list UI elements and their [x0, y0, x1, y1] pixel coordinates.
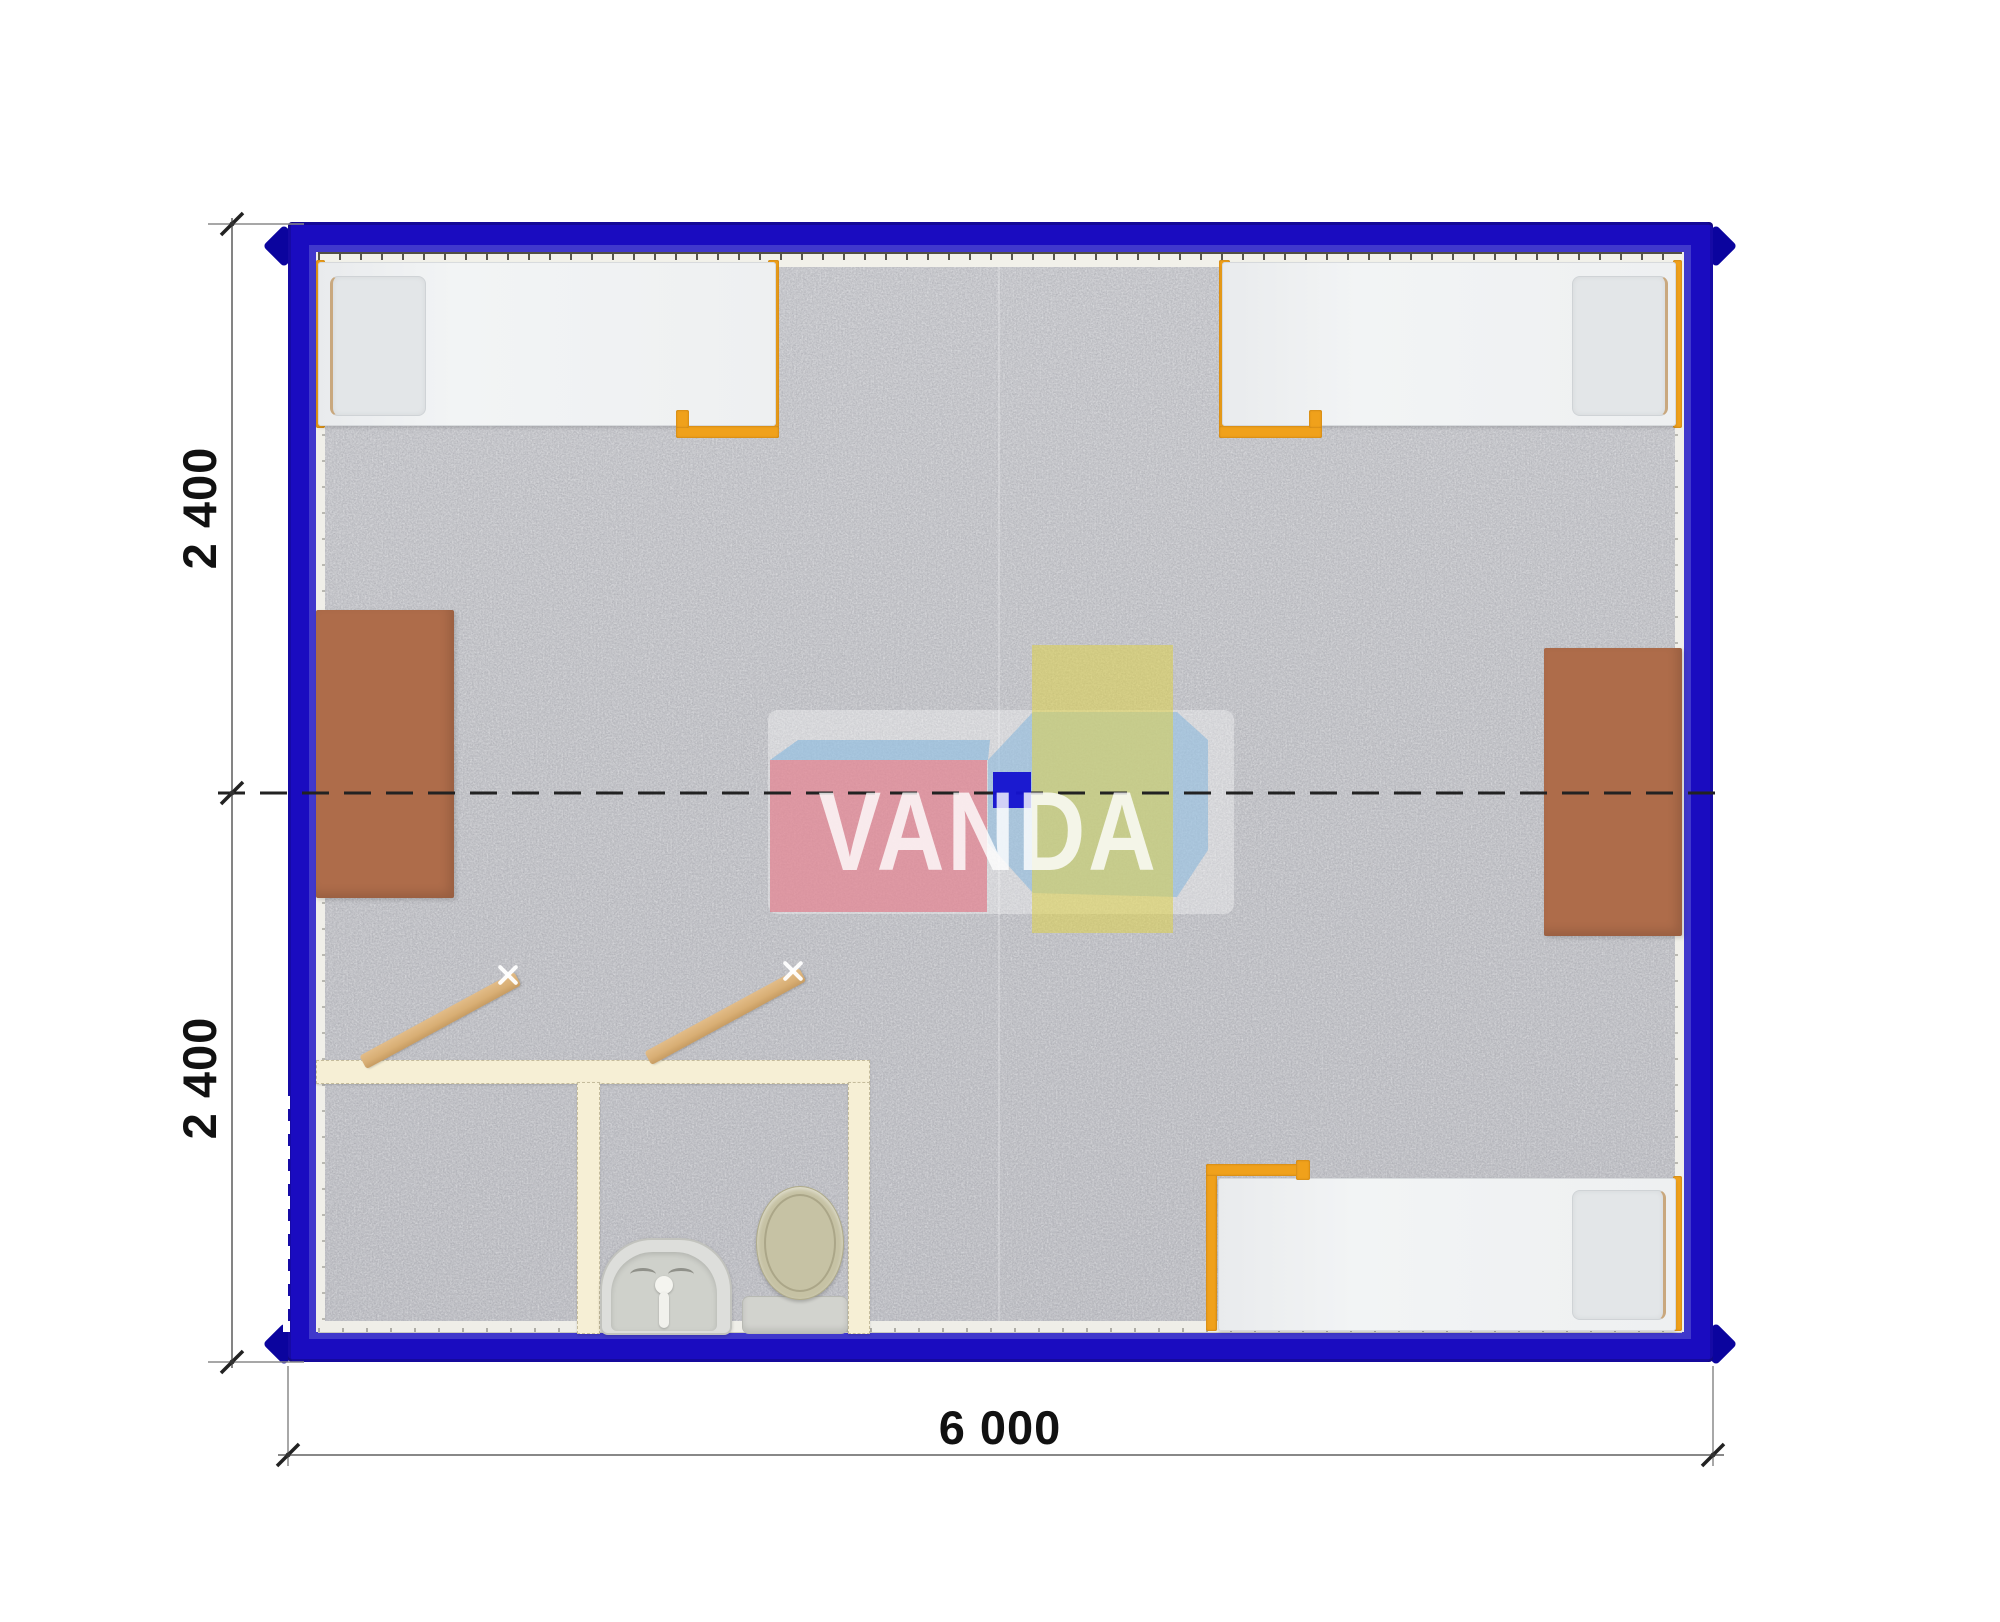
bed-bottom-right-frame-leg [1296, 1160, 1310, 1180]
toilet-tank [742, 1296, 848, 1334]
dimension-tick [277, 1444, 299, 1466]
door-handle-marker-icon [780, 958, 806, 984]
sanitary-partition-wall-right [848, 1082, 870, 1334]
bed-bottom-right-frame-foot [1206, 1164, 1217, 1331]
dimension-label-left-top: 2 400 [173, 447, 226, 570]
dimension-point [230, 222, 235, 227]
desk-right [1544, 648, 1682, 936]
dimension-label-bottom: 6 000 [939, 1401, 1062, 1454]
dimension-tick [1702, 1444, 1724, 1466]
entry-door-bracket-icon [271, 1124, 290, 1161]
bed-top-right-pillow [1572, 276, 1668, 416]
dimension-tick [221, 213, 243, 235]
floor-panel-seam [998, 252, 1000, 1332]
bed-bottom-right-pillow [1572, 1190, 1666, 1320]
bed-bottom-right-frame-rail [1206, 1164, 1308, 1176]
dimension-tick [221, 782, 243, 804]
dimension-point [1711, 1453, 1716, 1458]
washbasin-detail [630, 1268, 656, 1281]
toilet-lid [756, 1186, 844, 1300]
floor-plan-canvas: VANDA 2 400 2 400 6 000 [0, 0, 2000, 1622]
washbasin-faucet-stem [659, 1292, 669, 1328]
dimension-point [286, 1453, 291, 1458]
bed-top-right-frame-rail [1219, 426, 1322, 438]
bed-top-left-pillow [330, 276, 426, 416]
washbasin-detail [668, 1268, 694, 1281]
bed-top-right-frame-leg [1309, 410, 1322, 428]
dimension-point [230, 1360, 235, 1365]
sanitary-partition-wall-divider [577, 1082, 600, 1334]
bed-top-left-frame-rail [676, 426, 779, 438]
dimension-label-left-bottom: 2 400 [173, 1017, 226, 1140]
dimension-point [230, 791, 235, 796]
bed-top-left-frame-leg [676, 410, 689, 428]
door-handle-marker-icon [495, 962, 521, 988]
desk-left [316, 610, 454, 898]
dimension-tick [221, 1351, 243, 1373]
sanitary-partition-wall-top [316, 1060, 870, 1084]
